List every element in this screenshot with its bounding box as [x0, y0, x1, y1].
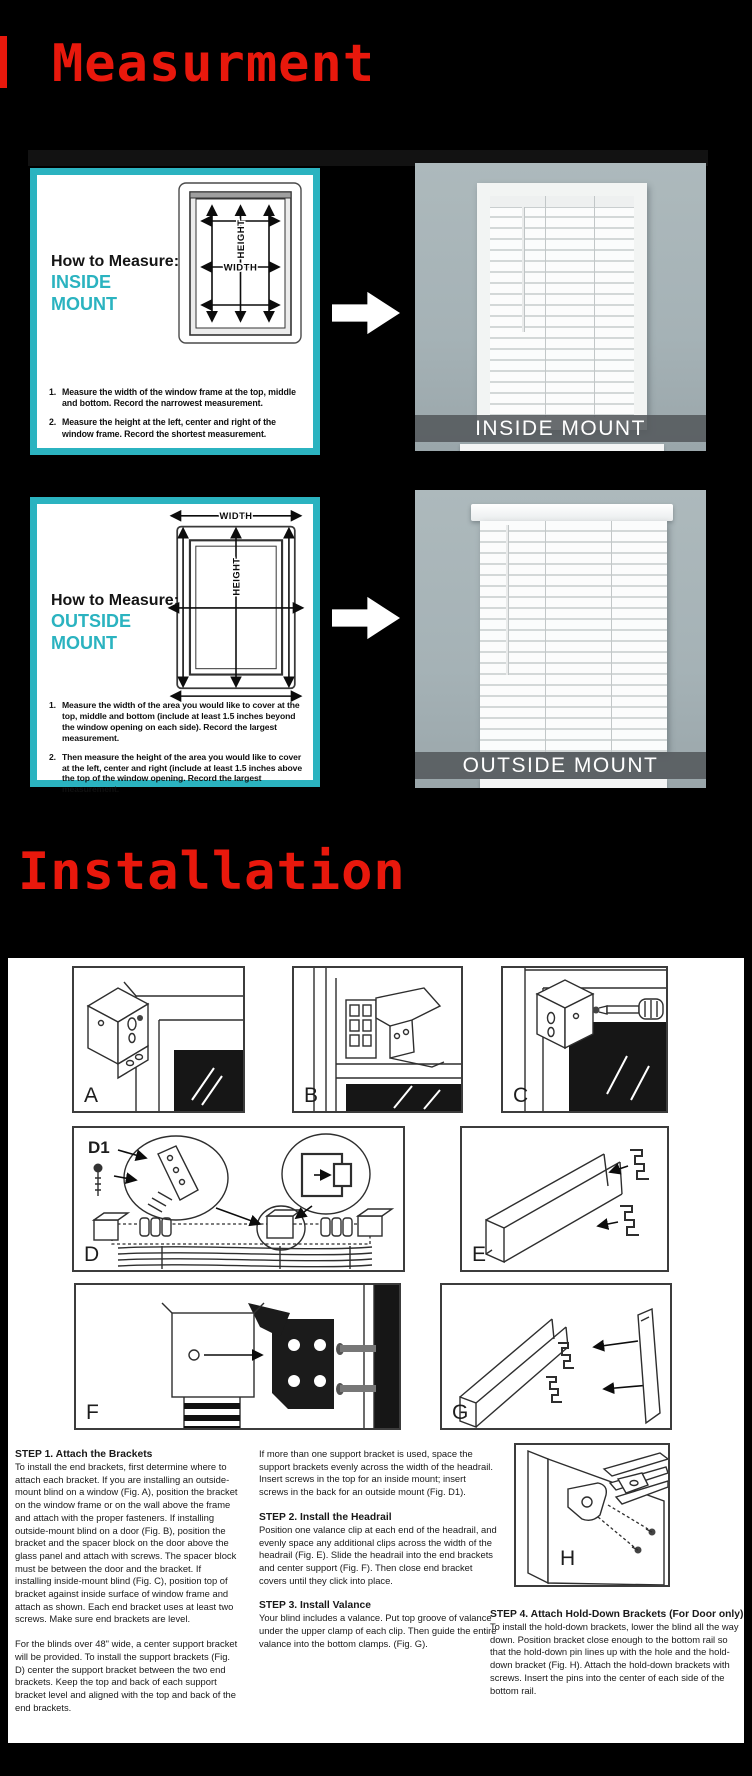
right-arrow-icon: [332, 289, 400, 337]
figure-f-drawing: [76, 1285, 399, 1428]
blinds-bottom-rail: [480, 779, 667, 788]
lift-cord: [545, 521, 546, 752]
inside-mount-panel: HEIGHT WIDTH How to Measure: INSIDE MOUN…: [30, 168, 320, 455]
inside-mount-photo: INSIDE MOUNT: [415, 163, 706, 451]
photo-caption: OUTSIDE MOUNT: [463, 754, 659, 778]
inside-mount-label: INSIDE MOUNT: [51, 271, 181, 315]
figure-h-drawing: [516, 1445, 668, 1585]
measure-step: 2. Measure the height at the left, cente…: [49, 417, 309, 439]
outside-mount-panel: WIDTH HEIGHT How to Measure: OUTSIDE MOU…: [30, 497, 320, 787]
window-sill: [460, 444, 664, 451]
inside-mount-window-diagram: HEIGHT WIDTH: [177, 181, 309, 349]
measure-step: 2. Then measure the height of the area y…: [49, 752, 309, 796]
step1-body2: For the blinds over 48" wide, a center s…: [15, 1638, 239, 1714]
blinds-headrail: [490, 196, 634, 208]
figure-a-box: A: [72, 966, 245, 1113]
figure-letter: G: [452, 1401, 468, 1425]
step1-body: To install the end brackets, first deter…: [15, 1461, 239, 1626]
figure-letter: H: [560, 1547, 575, 1571]
figure-letter: E: [472, 1243, 486, 1267]
howto-heading: How to Measure:: [51, 253, 181, 271]
figure-h-box: H: [514, 1443, 670, 1587]
step1-continued: If more than one support bracket is used…: [259, 1448, 497, 1499]
window-frame: [477, 183, 647, 430]
figure-a-drawing: [74, 968, 243, 1111]
valance: [471, 504, 673, 521]
figure-e-box: E: [460, 1126, 669, 1272]
blinds: [490, 196, 634, 417]
figure-f-box: F: [74, 1283, 401, 1430]
outside-mount-label: OUTSIDE MOUNT: [51, 610, 186, 654]
step3-body: Your blind includes a valance. Put top g…: [259, 1612, 497, 1650]
lift-cord: [545, 196, 546, 417]
step1-text-column: STEP 1. Attach the Brackets To install t…: [15, 1448, 239, 1726]
figure-g-box: G: [440, 1283, 672, 1430]
howto-heading: How to Measure:: [51, 592, 186, 610]
figure-letter: F: [86, 1401, 99, 1425]
lift-cord: [594, 196, 595, 417]
measure-step: 1. Measure the width of the window frame…: [49, 387, 309, 409]
figure-c-box: C: [501, 966, 668, 1113]
outside-mount-photo: OUTSIDE MOUNT: [415, 490, 706, 788]
installation-title: Installation: [18, 842, 406, 902]
figure-d-box: D1 D: [72, 1126, 405, 1272]
figure-b-box: B: [292, 966, 463, 1113]
height-label: HEIGHT: [236, 220, 247, 259]
figure-d1-label: D1: [88, 1138, 110, 1158]
blinds: [480, 521, 667, 752]
step4-text-column: STEP 4. Attach Hold-Down Brackets (For D…: [490, 1608, 744, 1709]
measurement-title: Measurment: [52, 34, 375, 94]
measure-step: 1. Measure the width of the area you wou…: [49, 700, 309, 744]
step2-text-column: If more than one support bracket is used…: [259, 1448, 497, 1662]
outside-mount-steps: 1. Measure the width of the area you wou…: [49, 700, 309, 803]
step3-heading: STEP 3. Install Valance: [259, 1599, 497, 1612]
infographic-page: Measurment HEIGHT WIDTH How to Measure: …: [0, 0, 752, 1776]
step1-heading: STEP 1. Attach the Brackets: [15, 1448, 239, 1461]
photo-caption: INSIDE MOUNT: [475, 417, 646, 441]
step4-body: To install the hold-down brackets, lower…: [490, 1621, 744, 1697]
tilt-wand: [506, 525, 508, 675]
installation-panel: A B: [8, 958, 744, 1743]
photo-caption-bar: OUTSIDE MOUNT: [415, 752, 706, 779]
figure-d-drawing: [74, 1128, 403, 1270]
inside-mount-steps: 1. Measure the width of the window frame…: [49, 387, 309, 448]
height-label: HEIGHT: [231, 558, 241, 596]
width-label: WIDTH: [220, 511, 253, 521]
step4-heading: STEP 4. Attach Hold-Down Brackets (For D…: [490, 1608, 744, 1621]
figure-g-drawing: [442, 1285, 670, 1428]
figure-letter: B: [304, 1084, 318, 1108]
figure-letter: A: [84, 1084, 98, 1108]
right-arrow-icon: [332, 594, 400, 642]
figure-letter: D: [84, 1243, 99, 1267]
figure-letter: C: [513, 1084, 528, 1108]
tilt-wand: [522, 207, 524, 332]
figure-e-drawing: [462, 1128, 667, 1270]
lift-cord: [611, 521, 612, 752]
cropped-letter-mark: [0, 36, 7, 88]
step2-heading: STEP 2. Install the Headrail: [259, 1511, 497, 1524]
width-label: WIDTH: [224, 263, 258, 274]
photo-caption-bar: INSIDE MOUNT: [415, 415, 706, 442]
step2-body: Position one valance clip at each end of…: [259, 1524, 497, 1588]
figure-b-drawing: [294, 968, 461, 1111]
